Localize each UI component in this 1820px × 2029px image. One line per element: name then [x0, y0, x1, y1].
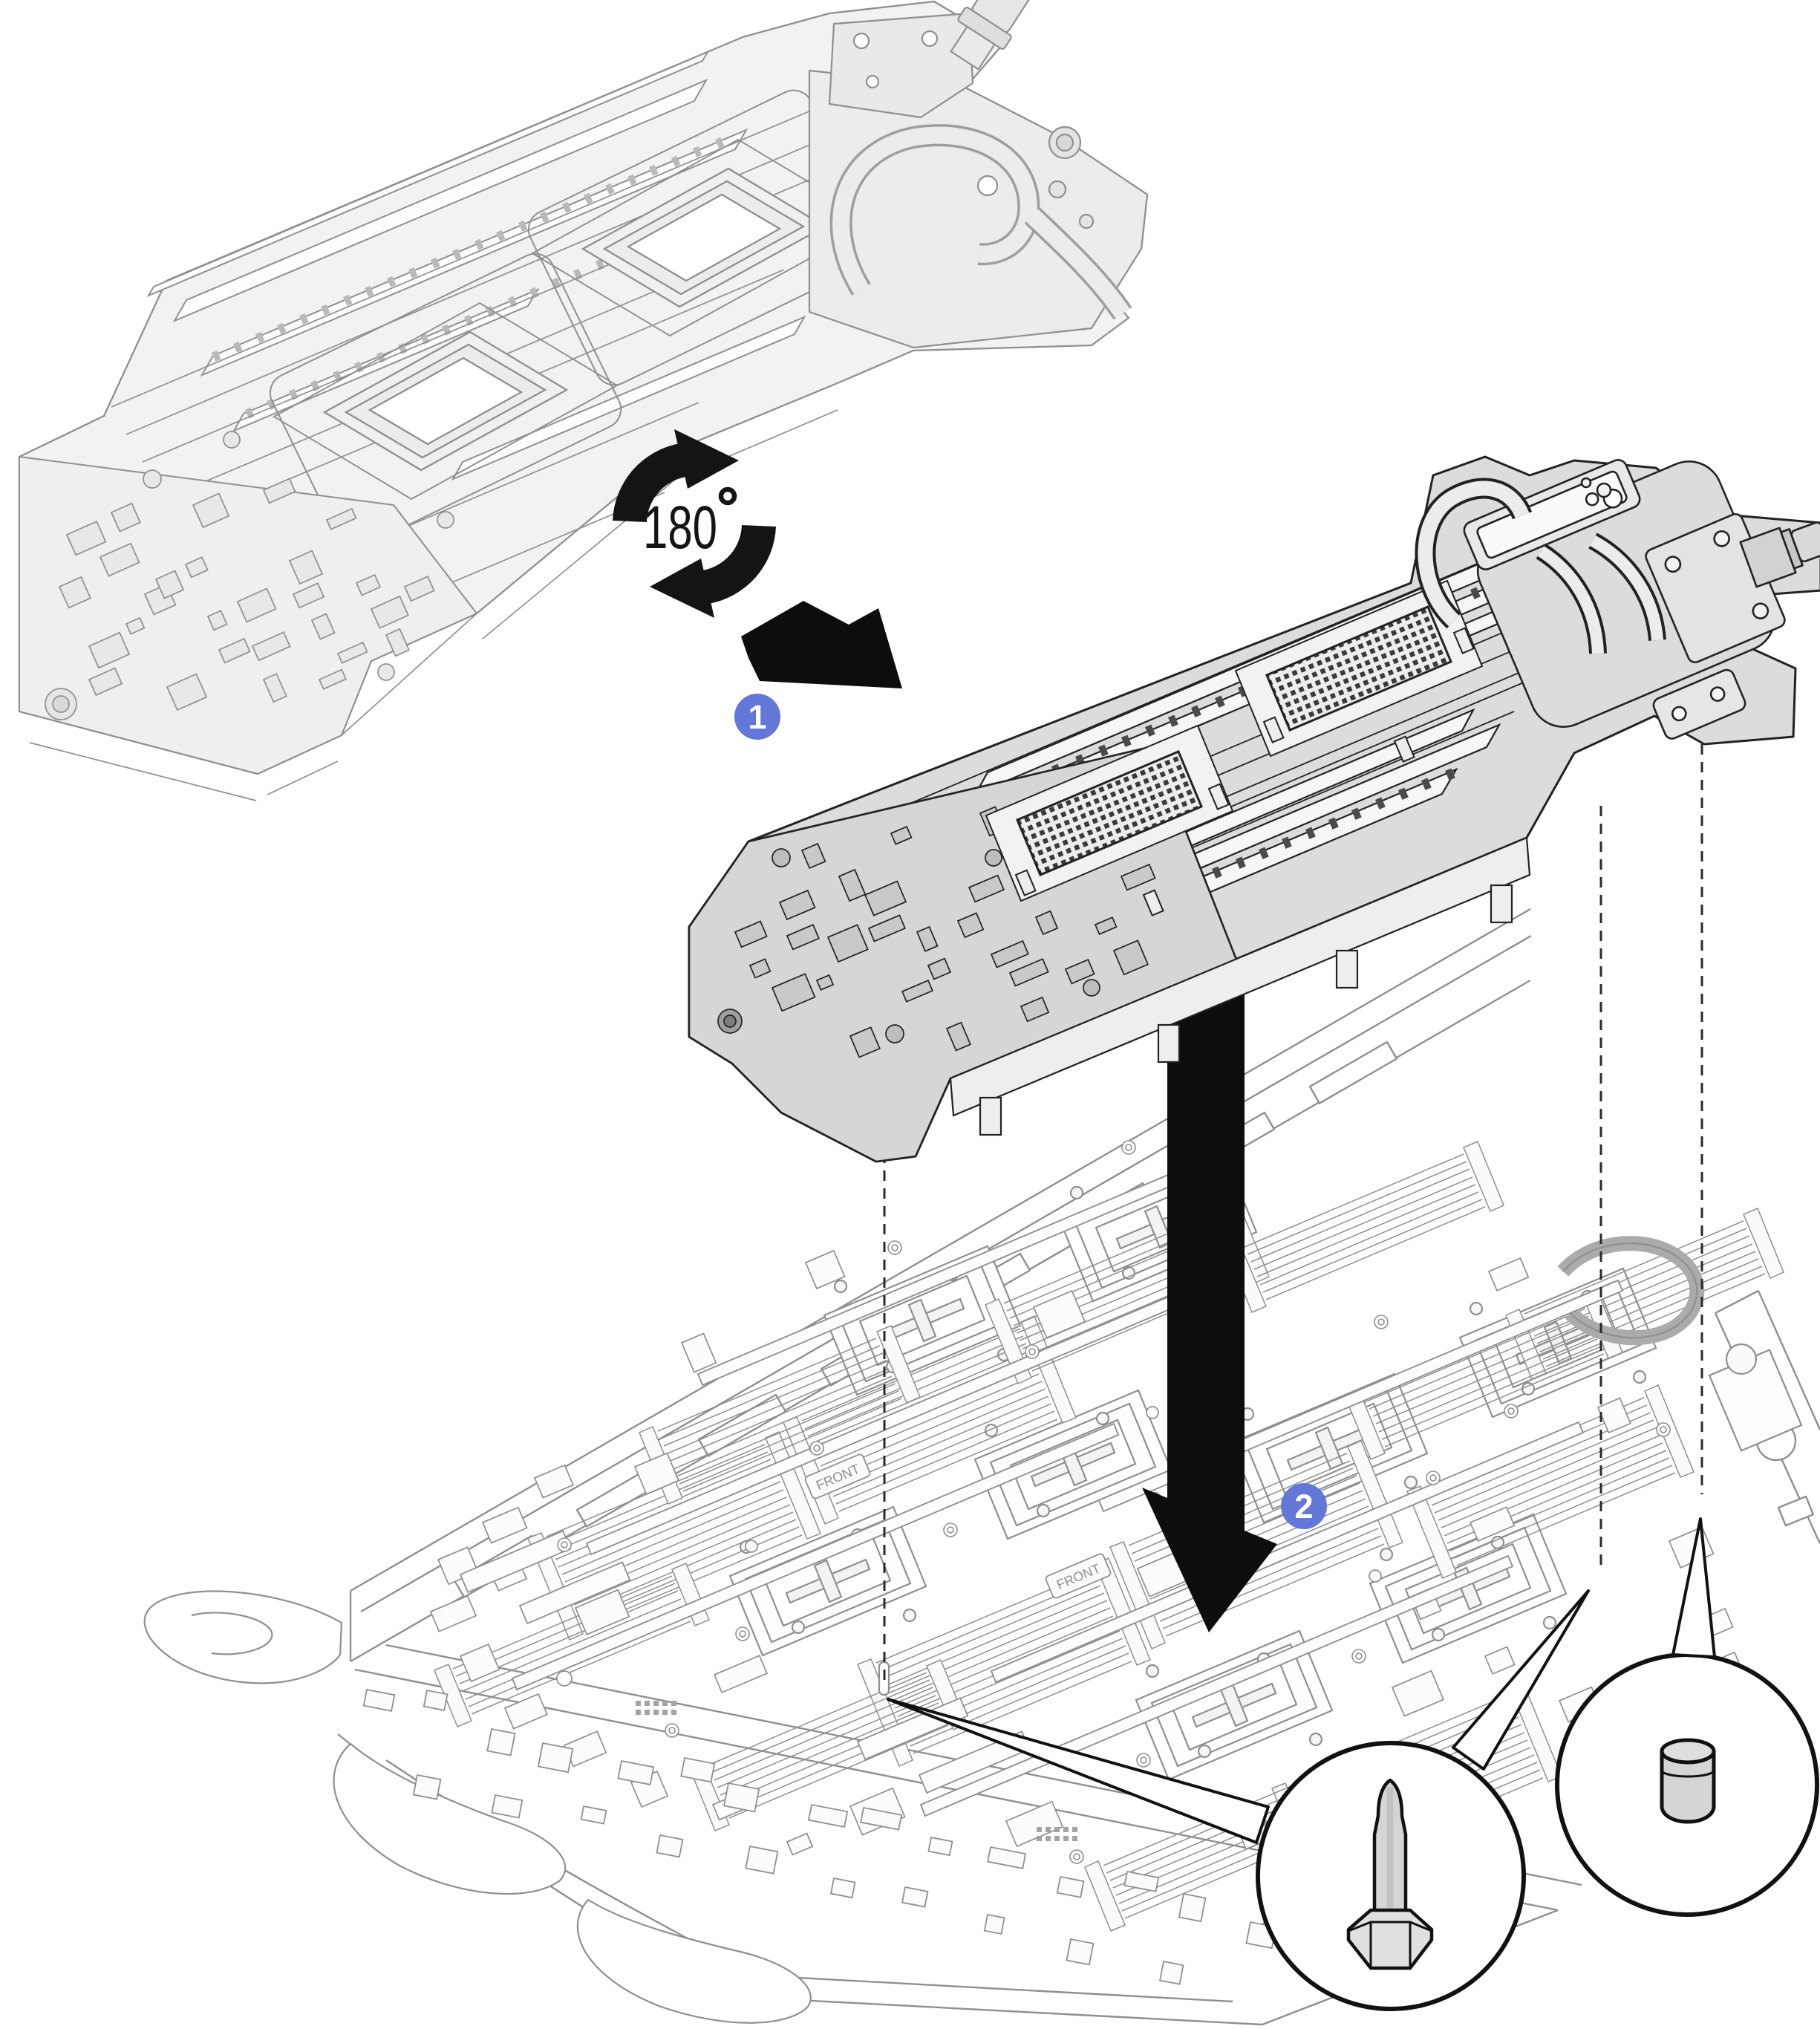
svg-text:2: 2	[1294, 1488, 1313, 1525]
svg-text:1: 1	[748, 698, 766, 736]
svg-text:180: 180	[643, 494, 717, 561]
